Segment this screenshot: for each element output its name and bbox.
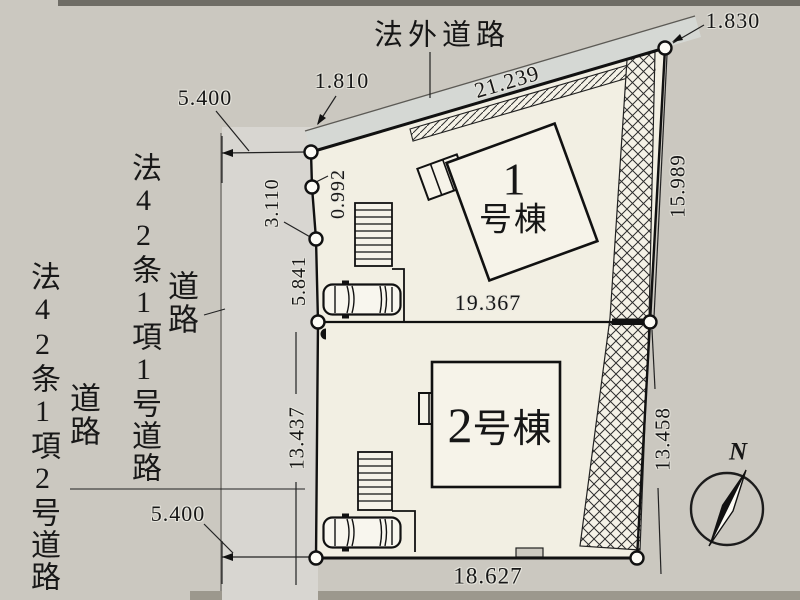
dim-front-right: 1.830 [706,10,761,32]
car-lot2 [324,514,401,552]
building-2-number: 2 [447,397,472,453]
dim-bottom-road-width: 5.400 [151,503,206,525]
dim-left-seg-mid: 3.110 [262,178,282,227]
dim-left-seg-low: 5.841 [289,256,309,306]
building-1-suffix: 号棟 [479,205,549,238]
building-2-suffix: 号棟 [472,408,552,451]
site-plan-drawing [0,0,800,600]
dim-right-upper: 15.989 [668,154,689,218]
top-road-label: 法外道路 [374,22,510,51]
left-road-lower-label: 法42条1項2号道路 [27,261,57,593]
left-road-upper-label: 法42条1項1号道路 [128,152,158,484]
dim-top-road-width: 5.400 [178,87,233,109]
dim-bottom-width: 18.627 [453,565,522,588]
compass-north-label: N [729,440,747,465]
dim-center-width: 19.367 [455,292,522,314]
compass-icon [691,470,763,546]
left-road-lower-sub-label: 道路 [67,382,98,448]
building-1-number: 1 [479,157,549,203]
dim-right-lower: 13.458 [653,407,674,471]
site-plan: 法外道路 21.239 1.810 1.830 5.400 15.989 13.… [0,0,800,600]
top-edge-band [58,0,800,6]
left-road-upper-sub-label: 道路 [165,270,196,336]
dim-front-left: 1.810 [315,70,370,92]
car-lot1 [324,281,401,319]
dim-left-lower: 13.437 [287,406,308,470]
dim-left-seg-small: 0.992 [328,169,348,219]
bottom-wall-mark [516,548,543,557]
building-2-label: 2号棟 [447,400,552,450]
building-1-label: 1 号棟 [479,157,549,238]
